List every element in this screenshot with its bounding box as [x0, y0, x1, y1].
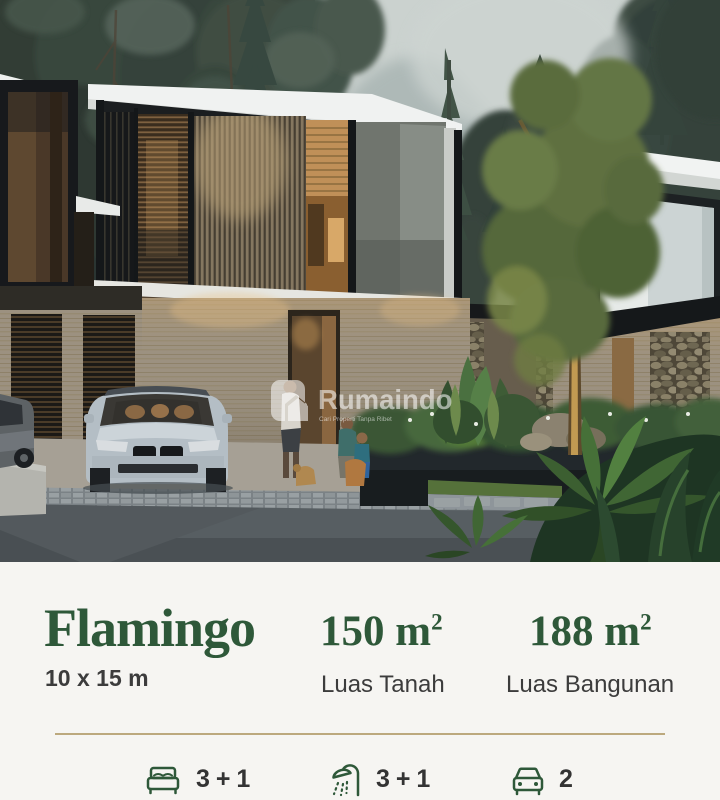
svg-text:Rumaindo: Rumaindo — [318, 384, 452, 415]
svg-text:Cari Properti Tanpa Ribet: Cari Properti Tanpa Ribet — [319, 416, 392, 423]
